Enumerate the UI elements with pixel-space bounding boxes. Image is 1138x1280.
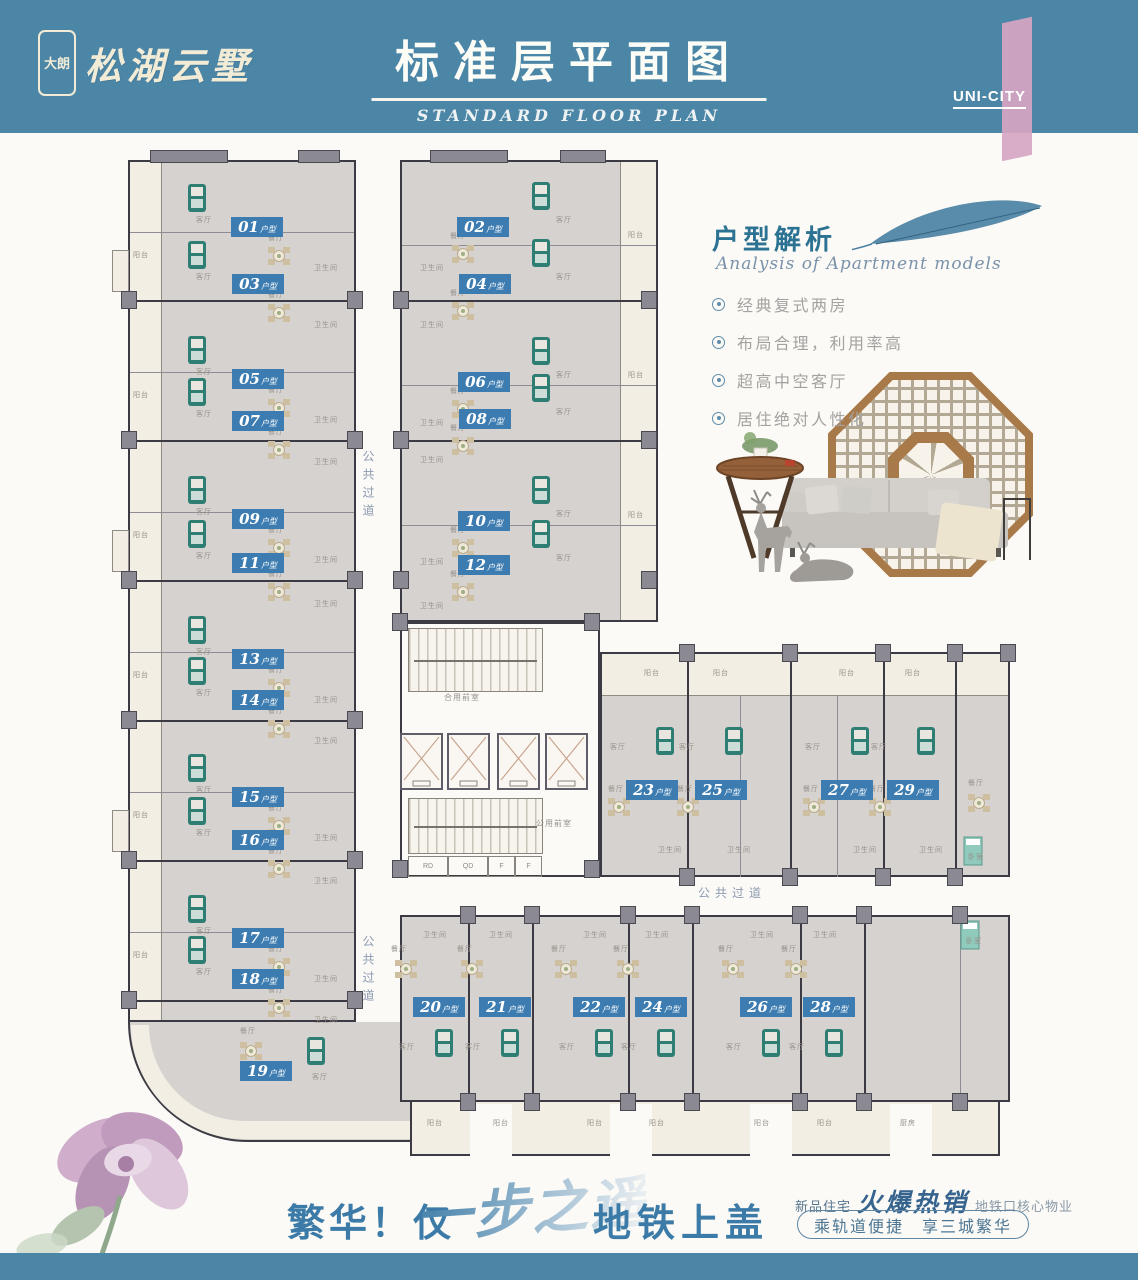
corridor-label: 公共过道	[698, 884, 788, 898]
unit-badge: 14户型	[232, 690, 284, 710]
room-label: 卫生间	[314, 974, 354, 983]
room-label: 餐厅	[968, 778, 1008, 787]
unit-number: 02	[464, 217, 485, 237]
wall	[128, 720, 356, 722]
analysis-title: 户型解析	[712, 218, 836, 257]
column-block	[620, 1093, 636, 1111]
room-label: 卫生间	[489, 930, 529, 939]
wall	[687, 652, 689, 877]
bullet-icon	[712, 412, 725, 425]
room-label: 卫生间	[314, 695, 354, 704]
room-label: 客厅	[196, 367, 236, 376]
dining-table-icon	[266, 997, 292, 1027]
room-label: 餐厅	[613, 944, 653, 953]
unit-number: 07	[239, 411, 260, 431]
sofa-icon	[915, 726, 941, 756]
unit-type-suffix: 户型	[261, 516, 277, 527]
unit-number: 26	[747, 997, 768, 1017]
column-block	[460, 906, 476, 924]
elevator-icon	[545, 733, 588, 790]
room-label: 餐厅	[457, 944, 497, 953]
pill-left-text: 乘轨道便捷	[814, 1213, 904, 1237]
column-block	[792, 1093, 808, 1111]
column-block	[524, 1093, 540, 1111]
unit-number: 12	[465, 555, 486, 575]
stairs-icon	[408, 628, 543, 692]
sofa-throw-blanket	[935, 502, 1004, 562]
corridor-vertical	[356, 160, 400, 1022]
sofa-icon	[530, 238, 556, 268]
column-block	[393, 291, 409, 309]
wall	[864, 915, 866, 1102]
dining-table-icon	[266, 581, 292, 611]
room-label: 卫生间	[658, 845, 698, 854]
room-label: 客厅	[805, 742, 845, 751]
dining-table-icon	[266, 858, 292, 888]
room-label: 卫生间	[423, 930, 463, 939]
unit-badge: 27户型	[821, 780, 873, 800]
balcony-bump	[112, 530, 129, 572]
room-label: 阳台	[644, 668, 684, 677]
unit-badge: 18户型	[232, 969, 284, 989]
bullet-text: 超高中空客厅	[737, 368, 848, 392]
column-block	[1000, 644, 1016, 662]
dining-table-icon	[553, 958, 579, 988]
column-block	[121, 291, 137, 309]
column-block	[782, 868, 798, 886]
column-block	[679, 868, 695, 886]
unit-badge: 05户型	[232, 369, 284, 389]
sofa-icon	[186, 796, 212, 826]
room-label: 阳台	[628, 230, 668, 239]
wall	[402, 385, 656, 386]
unit-type-suffix: 户型	[508, 1004, 524, 1015]
unit-type-suffix: 户型	[269, 1068, 285, 1079]
roof-block	[150, 150, 228, 163]
room-label: 卫生间	[314, 415, 354, 424]
unit-type-suffix: 户型	[832, 1004, 848, 1015]
column-block	[952, 906, 968, 924]
unit-badge: 28户型	[803, 997, 855, 1017]
title-underline	[372, 98, 767, 101]
unit-type-suffix: 户型	[655, 787, 671, 798]
bed-icon	[960, 920, 986, 950]
room-label: 卫生间	[314, 320, 354, 329]
room-label: 卫生间	[813, 930, 853, 939]
room-label: 客厅	[196, 688, 236, 697]
footer-bar	[0, 1253, 1138, 1280]
unit-type-suffix: 户型	[769, 1004, 785, 1015]
room-label: 客厅	[196, 828, 236, 837]
unit-badge: 09户型	[232, 509, 284, 529]
dining-table-icon	[266, 439, 292, 469]
room-label: 客厅	[196, 926, 236, 935]
column-block	[875, 644, 891, 662]
page-subtitle: STANDARD FLOOR PLAN	[417, 106, 721, 125]
room-label: 客厅	[196, 647, 236, 656]
bullet-icon	[712, 374, 725, 387]
room-label: 客厅	[556, 509, 596, 518]
room-label: 卫生间	[314, 876, 354, 885]
unit-type-suffix: 户型	[664, 1004, 680, 1015]
unit-badge: 15户型	[232, 787, 284, 807]
unit-number: 14	[239, 690, 260, 710]
unit-type-suffix: 户型	[487, 562, 503, 573]
tagline-part-2: 地铁上盖	[593, 1192, 769, 1247]
core-room-label: QD	[448, 856, 488, 877]
unit-number: 04	[466, 274, 487, 294]
unit-badge: 23户型	[626, 780, 678, 800]
dining-table-icon	[266, 302, 292, 332]
unit-number: 08	[466, 409, 487, 429]
room-label: 餐厅	[551, 944, 591, 953]
title-block: 标准层平面图 STANDARD FLOOR PLAN	[372, 26, 767, 125]
column-block	[782, 644, 798, 662]
bullet-text: 经典复式两房	[737, 292, 848, 316]
room-label: 餐厅	[781, 944, 821, 953]
room-label: 阳台	[133, 950, 173, 959]
wall	[128, 860, 356, 862]
room-label: 客厅	[556, 272, 596, 281]
room-label: 卫生间	[583, 930, 623, 939]
column-block	[392, 613, 408, 631]
unit-type-suffix: 户型	[261, 976, 277, 987]
sofa-icon	[186, 475, 212, 505]
bed-icon	[963, 836, 989, 866]
core-room-label: RD	[408, 856, 448, 877]
sofa-icon	[530, 373, 556, 403]
flower-decoration	[8, 1088, 243, 1261]
unit-type-suffix: 户型	[261, 935, 277, 946]
column-block	[121, 991, 137, 1009]
bullet-icon	[712, 336, 725, 349]
room-label: 客厅	[312, 1072, 352, 1081]
unit-number: 03	[239, 274, 260, 294]
unit-number: 11	[239, 553, 260, 573]
column-block	[347, 291, 363, 309]
bullet-item: 居住绝对人性化	[712, 406, 867, 430]
room-label: 客厅	[556, 215, 596, 224]
room-label: 客厅	[196, 409, 236, 418]
unit-number: 24	[642, 997, 663, 1017]
unit-number: 25	[702, 780, 723, 800]
dining-table-icon	[966, 792, 992, 822]
sofa-icon	[530, 519, 556, 549]
room-label: 阳台	[905, 668, 945, 677]
bullet-item: 经典复式两房	[712, 292, 848, 316]
room-label: 餐厅	[240, 1026, 280, 1035]
room-label: 客厅	[621, 1042, 661, 1051]
unit-type-suffix: 户型	[261, 281, 277, 292]
column-block	[121, 431, 137, 449]
column-block	[347, 431, 363, 449]
wall	[532, 915, 534, 1102]
room-label: 客厅	[196, 967, 236, 976]
sofa-icon	[186, 519, 212, 549]
deer-lying-icon	[782, 540, 858, 591]
dining-table-icon	[266, 245, 292, 275]
column-block	[679, 644, 695, 662]
room-label: 客厅	[196, 215, 236, 224]
column-block	[584, 613, 600, 631]
room-label: 阳台	[839, 668, 879, 677]
unit-badge: 08户型	[459, 409, 511, 429]
unit-type-suffix: 户型	[442, 1004, 458, 1015]
unit-badge: 04户型	[459, 274, 511, 294]
room-label: 阳台	[427, 1118, 467, 1127]
elevator-icon	[447, 733, 490, 790]
room-label: 阳台	[713, 668, 753, 677]
room-label: 卫生间	[420, 557, 460, 566]
unit-number: 28	[810, 997, 831, 1017]
room-label: 卧室	[968, 852, 1008, 861]
sofa-leg	[996, 548, 1001, 557]
unit-number: 16	[239, 830, 260, 850]
wall	[400, 300, 658, 302]
unit-badge: 06户型	[458, 372, 510, 392]
unit-badge: 07户型	[232, 411, 284, 431]
column-block	[947, 868, 963, 886]
room-label: 客厅	[556, 407, 596, 416]
sofa-icon	[849, 726, 875, 756]
sofa-icon	[186, 335, 212, 365]
unit-number: 05	[239, 369, 260, 389]
room-label: 卫生间	[645, 930, 685, 939]
column-block	[460, 1093, 476, 1111]
unit-badge: 26户型	[740, 997, 792, 1017]
column-block	[641, 291, 657, 309]
dining-table-icon	[459, 958, 485, 988]
brand-text: UNI-CITY	[953, 88, 1026, 109]
balcony-gap	[610, 1104, 652, 1156]
room-label: 客厅	[679, 742, 719, 751]
room-label: 客厅	[559, 1042, 599, 1051]
logo-name: 松湖云墅	[85, 36, 253, 90]
column-block	[393, 431, 409, 449]
unit-badge: 10户型	[458, 511, 510, 531]
column-block	[684, 1093, 700, 1111]
roof-block	[298, 150, 340, 163]
wall	[128, 300, 356, 302]
unit-type-suffix: 户型	[916, 787, 932, 798]
unit-badge: 29户型	[887, 780, 939, 800]
dining-table-icon	[801, 796, 827, 826]
promo-pill: 乘轨道便捷 享三城繁华	[797, 1210, 1029, 1239]
unit-badge: 20户型	[413, 997, 465, 1017]
column-block	[347, 991, 363, 1009]
room-label: 卫生间	[750, 930, 790, 939]
room-label: 客厅	[196, 551, 236, 560]
unit-number: 01	[238, 217, 259, 237]
room-label: 卫生间	[314, 599, 354, 608]
room-label: 客厅	[556, 370, 596, 379]
unit-number: 21	[486, 997, 507, 1017]
room-label: 客厅	[196, 272, 236, 281]
column-block	[641, 431, 657, 449]
unit-type-suffix: 户型	[261, 560, 277, 571]
room-label: 卧室	[966, 936, 1006, 945]
unit-badge: 11户型	[232, 553, 284, 573]
room-label: 卫生间	[314, 833, 354, 842]
room-label: 阳台	[133, 250, 173, 259]
unit-number: 17	[239, 928, 260, 948]
wall	[128, 440, 356, 442]
room-label: 卫生间	[314, 1015, 354, 1024]
room-label: 客厅	[610, 742, 650, 751]
bullet-text: 布局合理，利用率高	[737, 330, 904, 354]
room-label: 客厅	[196, 785, 236, 794]
pill-right-text: 享三城繁华	[922, 1213, 1012, 1237]
dining-table-icon	[393, 958, 419, 988]
room-label: 阳台	[133, 530, 173, 539]
sofa-icon	[305, 1036, 331, 1066]
page-title: 标准层平面图	[395, 26, 743, 90]
room-label: 卫生间	[314, 457, 354, 466]
wall	[790, 652, 792, 877]
unit-type-suffix: 户型	[488, 416, 504, 427]
core-label: 合用前室	[444, 692, 514, 702]
unit-badge: 21户型	[479, 997, 531, 1017]
unit-number: 13	[239, 649, 260, 669]
unit-type-suffix: 户型	[261, 656, 277, 667]
bullet-item: 布局合理，利用率高	[712, 330, 904, 354]
room-label: 阳台	[133, 670, 173, 679]
logo: 大朗 松湖云墅	[38, 30, 253, 96]
balcony-gap	[890, 1104, 932, 1156]
room-label: 客厅	[556, 553, 596, 562]
room-label: 卫生间	[919, 845, 959, 854]
room-label: 阳台	[628, 510, 668, 519]
unit-number: 15	[239, 787, 260, 807]
unit-number: 23	[633, 780, 654, 800]
core-room-label: F	[515, 856, 542, 877]
unit-type-suffix: 户型	[261, 837, 277, 848]
wall	[128, 580, 356, 582]
wall	[402, 245, 656, 246]
roof-block	[560, 150, 606, 163]
wall	[955, 652, 957, 877]
unit-type-suffix: 户型	[487, 518, 503, 529]
balcony-gap	[470, 1104, 512, 1156]
room-label: 阳台	[628, 370, 668, 379]
dining-table-icon	[783, 958, 809, 988]
room-label: 卫生间	[853, 845, 893, 854]
unit-type-suffix: 户型	[487, 379, 503, 390]
wall	[402, 525, 656, 526]
unit-number: 27	[828, 780, 849, 800]
column-block	[121, 711, 137, 729]
dining-table-icon	[720, 958, 746, 988]
room-label: 卫生间	[314, 736, 354, 745]
column-block	[347, 711, 363, 729]
room-label: 客厅	[789, 1042, 829, 1051]
room-label: 厨房	[900, 1118, 940, 1127]
room-label: 客厅	[399, 1042, 439, 1051]
dining-table-icon	[606, 796, 632, 826]
room-label: 客厅	[871, 742, 911, 751]
logo-seal: 大朗	[38, 30, 76, 96]
unit-number: 20	[420, 997, 441, 1017]
column-block	[347, 851, 363, 869]
unit-badge: 24户型	[635, 997, 687, 1017]
column-block	[524, 906, 540, 924]
wall	[400, 440, 658, 442]
bullet-text: 居住绝对人性化	[737, 406, 867, 430]
room-label: 阳台	[587, 1118, 627, 1127]
sofa-icon	[186, 240, 212, 270]
unit-badge: 25户型	[695, 780, 747, 800]
unit-number: 09	[239, 509, 260, 529]
unit-type-suffix: 户型	[724, 787, 740, 798]
sofa-seam	[888, 480, 890, 514]
room-label: 阳台	[133, 810, 173, 819]
sofa-icon	[186, 615, 212, 645]
column-block	[393, 571, 409, 589]
unit-type-suffix: 户型	[261, 376, 277, 387]
column-block	[121, 571, 137, 589]
column-block	[620, 906, 636, 924]
room-label: 卫生间	[314, 555, 354, 564]
unit-type-suffix: 户型	[261, 794, 277, 805]
wall	[883, 652, 885, 877]
bullet-icon	[712, 298, 725, 311]
column-block	[584, 860, 600, 878]
column-block	[952, 1093, 968, 1111]
sofa-pillow	[841, 486, 872, 514]
room-label: 卫生间	[727, 845, 767, 854]
balcony-gap	[750, 1104, 792, 1156]
sofa-icon	[186, 894, 212, 924]
room-label: 卫生间	[420, 320, 460, 329]
unit-type-suffix: 户型	[261, 418, 277, 429]
unit-type-suffix: 户型	[261, 697, 277, 708]
room-label: 客厅	[196, 507, 236, 516]
room-label: 阳台	[817, 1118, 857, 1127]
elevator-icon	[400, 733, 443, 790]
sofa-icon	[186, 753, 212, 783]
unit-badge: 19户型	[240, 1061, 292, 1081]
room-label: 阳台	[754, 1118, 794, 1127]
unit-badge: 17户型	[232, 928, 284, 948]
core-room-label: F	[488, 856, 515, 877]
column-block	[875, 868, 891, 886]
balcony-bump	[112, 250, 129, 292]
unit-badge: 12户型	[458, 555, 510, 575]
sofa-icon	[186, 377, 212, 407]
column-block	[856, 906, 872, 924]
room-label: 餐厅	[718, 944, 758, 953]
room-label: 阳台	[133, 390, 173, 399]
unit-badge: 03户型	[232, 274, 284, 294]
unit-number: 06	[465, 372, 486, 392]
roof-block	[430, 150, 508, 163]
column-block	[641, 571, 657, 589]
unit-badge: 02户型	[457, 217, 509, 237]
column-block	[392, 860, 408, 878]
room-label: 阳台	[493, 1118, 533, 1127]
unit-type-suffix: 户型	[260, 224, 276, 235]
room-label: 客厅	[465, 1042, 505, 1051]
column-block	[347, 571, 363, 589]
poster-page: 大朗 松湖云墅 标准层平面图 STANDARD FLOOR PLAN UNI-C…	[0, 0, 1138, 1280]
room-label: 阳台	[649, 1118, 689, 1127]
core-label: 公用前室	[536, 818, 606, 828]
wall	[692, 915, 694, 1102]
unit-number: 22	[580, 997, 601, 1017]
unit-type-suffix: 户型	[602, 1004, 618, 1015]
column-block	[856, 1093, 872, 1111]
dining-table-icon	[266, 718, 292, 748]
